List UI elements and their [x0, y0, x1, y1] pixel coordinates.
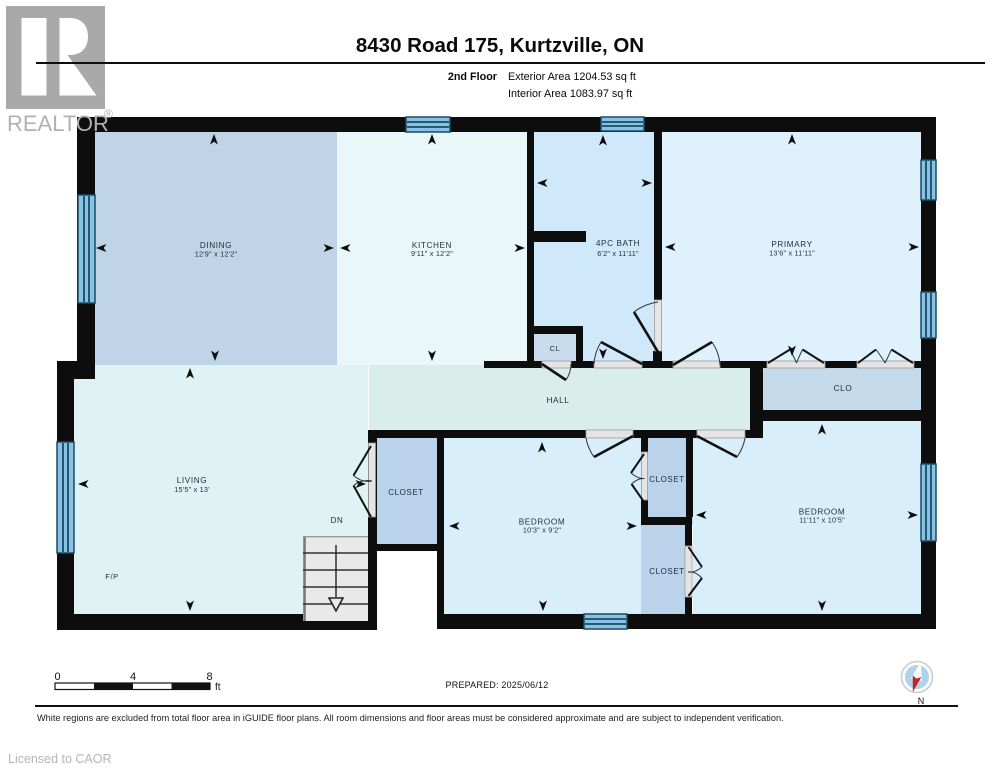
svg-text:12'9" x 12'2": 12'9" x 12'2" — [195, 250, 238, 259]
svg-text:CLOSET: CLOSET — [388, 488, 424, 497]
svg-text:8430 Road 175, Kurtzville, ON: 8430 Road 175, Kurtzville, ON — [356, 34, 644, 57]
svg-text:CL: CL — [550, 344, 561, 353]
svg-text:4: 4 — [130, 671, 136, 683]
svg-text:4PC BATH: 4PC BATH — [596, 239, 640, 248]
svg-text:LIVING: LIVING — [177, 476, 207, 485]
svg-text:Licensed to CAOR: Licensed to CAOR — [8, 752, 112, 766]
svg-text:PREPARED: 2025/06/12: PREPARED: 2025/06/12 — [446, 680, 549, 690]
svg-text:N: N — [918, 696, 925, 706]
svg-text:11'11" x 10'5": 11'11" x 10'5" — [799, 516, 845, 525]
svg-text:15'5" x 13': 15'5" x 13' — [174, 485, 210, 494]
svg-text:®: ® — [104, 107, 113, 121]
svg-text:CLO: CLO — [834, 384, 853, 393]
svg-text:CLOSET: CLOSET — [649, 567, 685, 576]
svg-text:White regions are excluded fro: White regions are excluded from total fl… — [37, 713, 784, 723]
svg-text:F/P: F/P — [105, 572, 118, 581]
svg-text:REALTOR: REALTOR — [7, 111, 109, 136]
svg-text:0: 0 — [54, 671, 60, 683]
svg-text:DN: DN — [331, 516, 344, 525]
svg-text:Exterior Area 1204.53 sq ft: Exterior Area 1204.53 sq ft — [508, 71, 636, 83]
svg-text:13'6" x 11'11": 13'6" x 11'11" — [769, 249, 815, 258]
svg-text:Interior Area 1083.97 sq ft: Interior Area 1083.97 sq ft — [508, 88, 632, 100]
svg-text:6'2" x 11'11": 6'2" x 11'11" — [597, 249, 639, 258]
svg-text:2nd Floor: 2nd Floor — [448, 71, 498, 83]
svg-text:CLOSET: CLOSET — [649, 475, 685, 484]
svg-text:10'3" x 9'2": 10'3" x 9'2" — [523, 526, 562, 535]
svg-text:9'11" x 12'2": 9'11" x 12'2" — [411, 249, 453, 258]
svg-text:8: 8 — [206, 671, 212, 683]
svg-text:HALL: HALL — [547, 396, 570, 405]
svg-text:ft: ft — [215, 682, 221, 693]
